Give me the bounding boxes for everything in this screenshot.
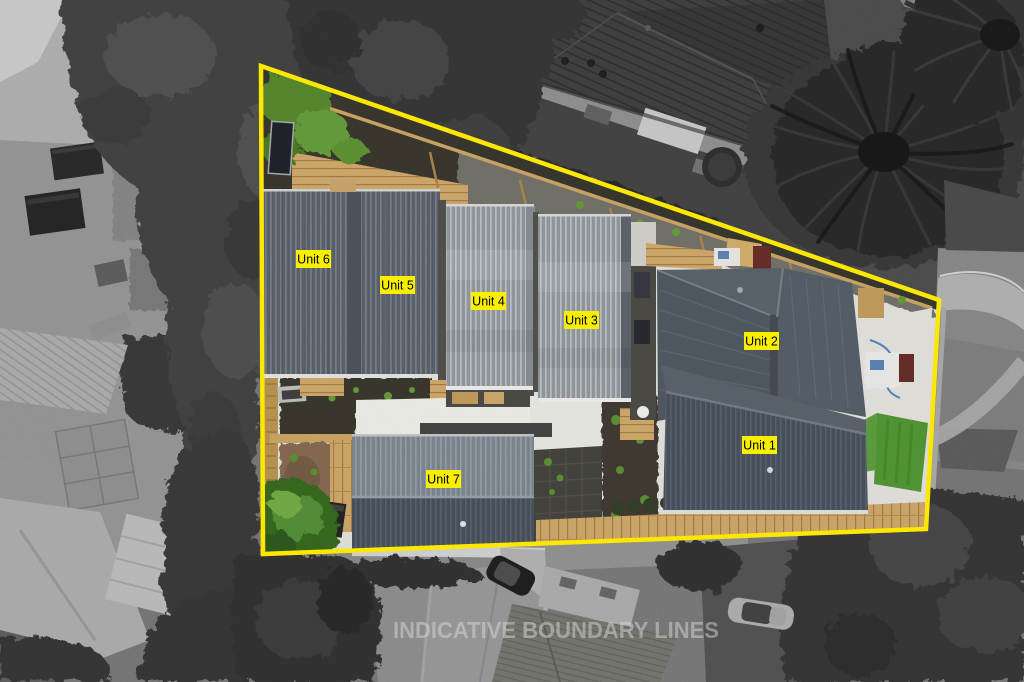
svg-text:Unit 2: Unit 2 xyxy=(745,335,778,349)
svg-text:Unit 1: Unit 1 xyxy=(743,439,776,453)
svg-text:Unit 5: Unit 5 xyxy=(381,279,414,293)
svg-text:INDICATIVE BOUNDARY LINES: INDICATIVE BOUNDARY LINES xyxy=(393,617,719,643)
svg-text:Unit 6: Unit 6 xyxy=(297,253,330,267)
svg-text:Unit 3: Unit 3 xyxy=(565,314,598,328)
svg-text:Unit 7: Unit 7 xyxy=(427,473,460,487)
svg-text:Unit 4: Unit 4 xyxy=(472,295,505,309)
